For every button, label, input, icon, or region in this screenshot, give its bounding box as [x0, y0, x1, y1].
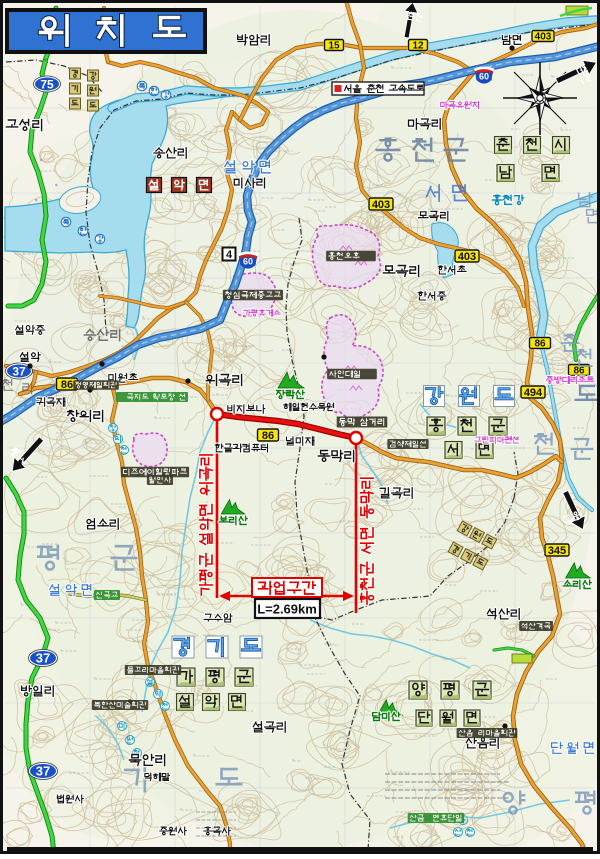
svg-text:4: 4: [226, 249, 233, 261]
svg-text:494: 494: [524, 387, 543, 399]
svg-text:86: 86: [534, 339, 546, 350]
svg-text:403: 403: [535, 32, 552, 43]
svg-text:L=2.69km: L=2.69km: [257, 602, 317, 617]
svg-text:345: 345: [548, 545, 566, 557]
svg-text:86: 86: [573, 366, 585, 377]
svg-text:86: 86: [61, 379, 73, 391]
svg-text:37: 37: [12, 364, 26, 378]
svg-text:75: 75: [40, 77, 54, 91]
svg-text:403: 403: [458, 251, 476, 263]
svg-text:15: 15: [328, 41, 340, 52]
svg-text:60: 60: [479, 72, 489, 82]
svg-text:12: 12: [412, 41, 424, 52]
svg-text:86: 86: [262, 430, 274, 442]
svg-text:60: 60: [243, 257, 253, 267]
svg-text:403: 403: [372, 199, 390, 211]
svg-text:37: 37: [36, 764, 50, 779]
svg-text:37: 37: [36, 651, 50, 666]
